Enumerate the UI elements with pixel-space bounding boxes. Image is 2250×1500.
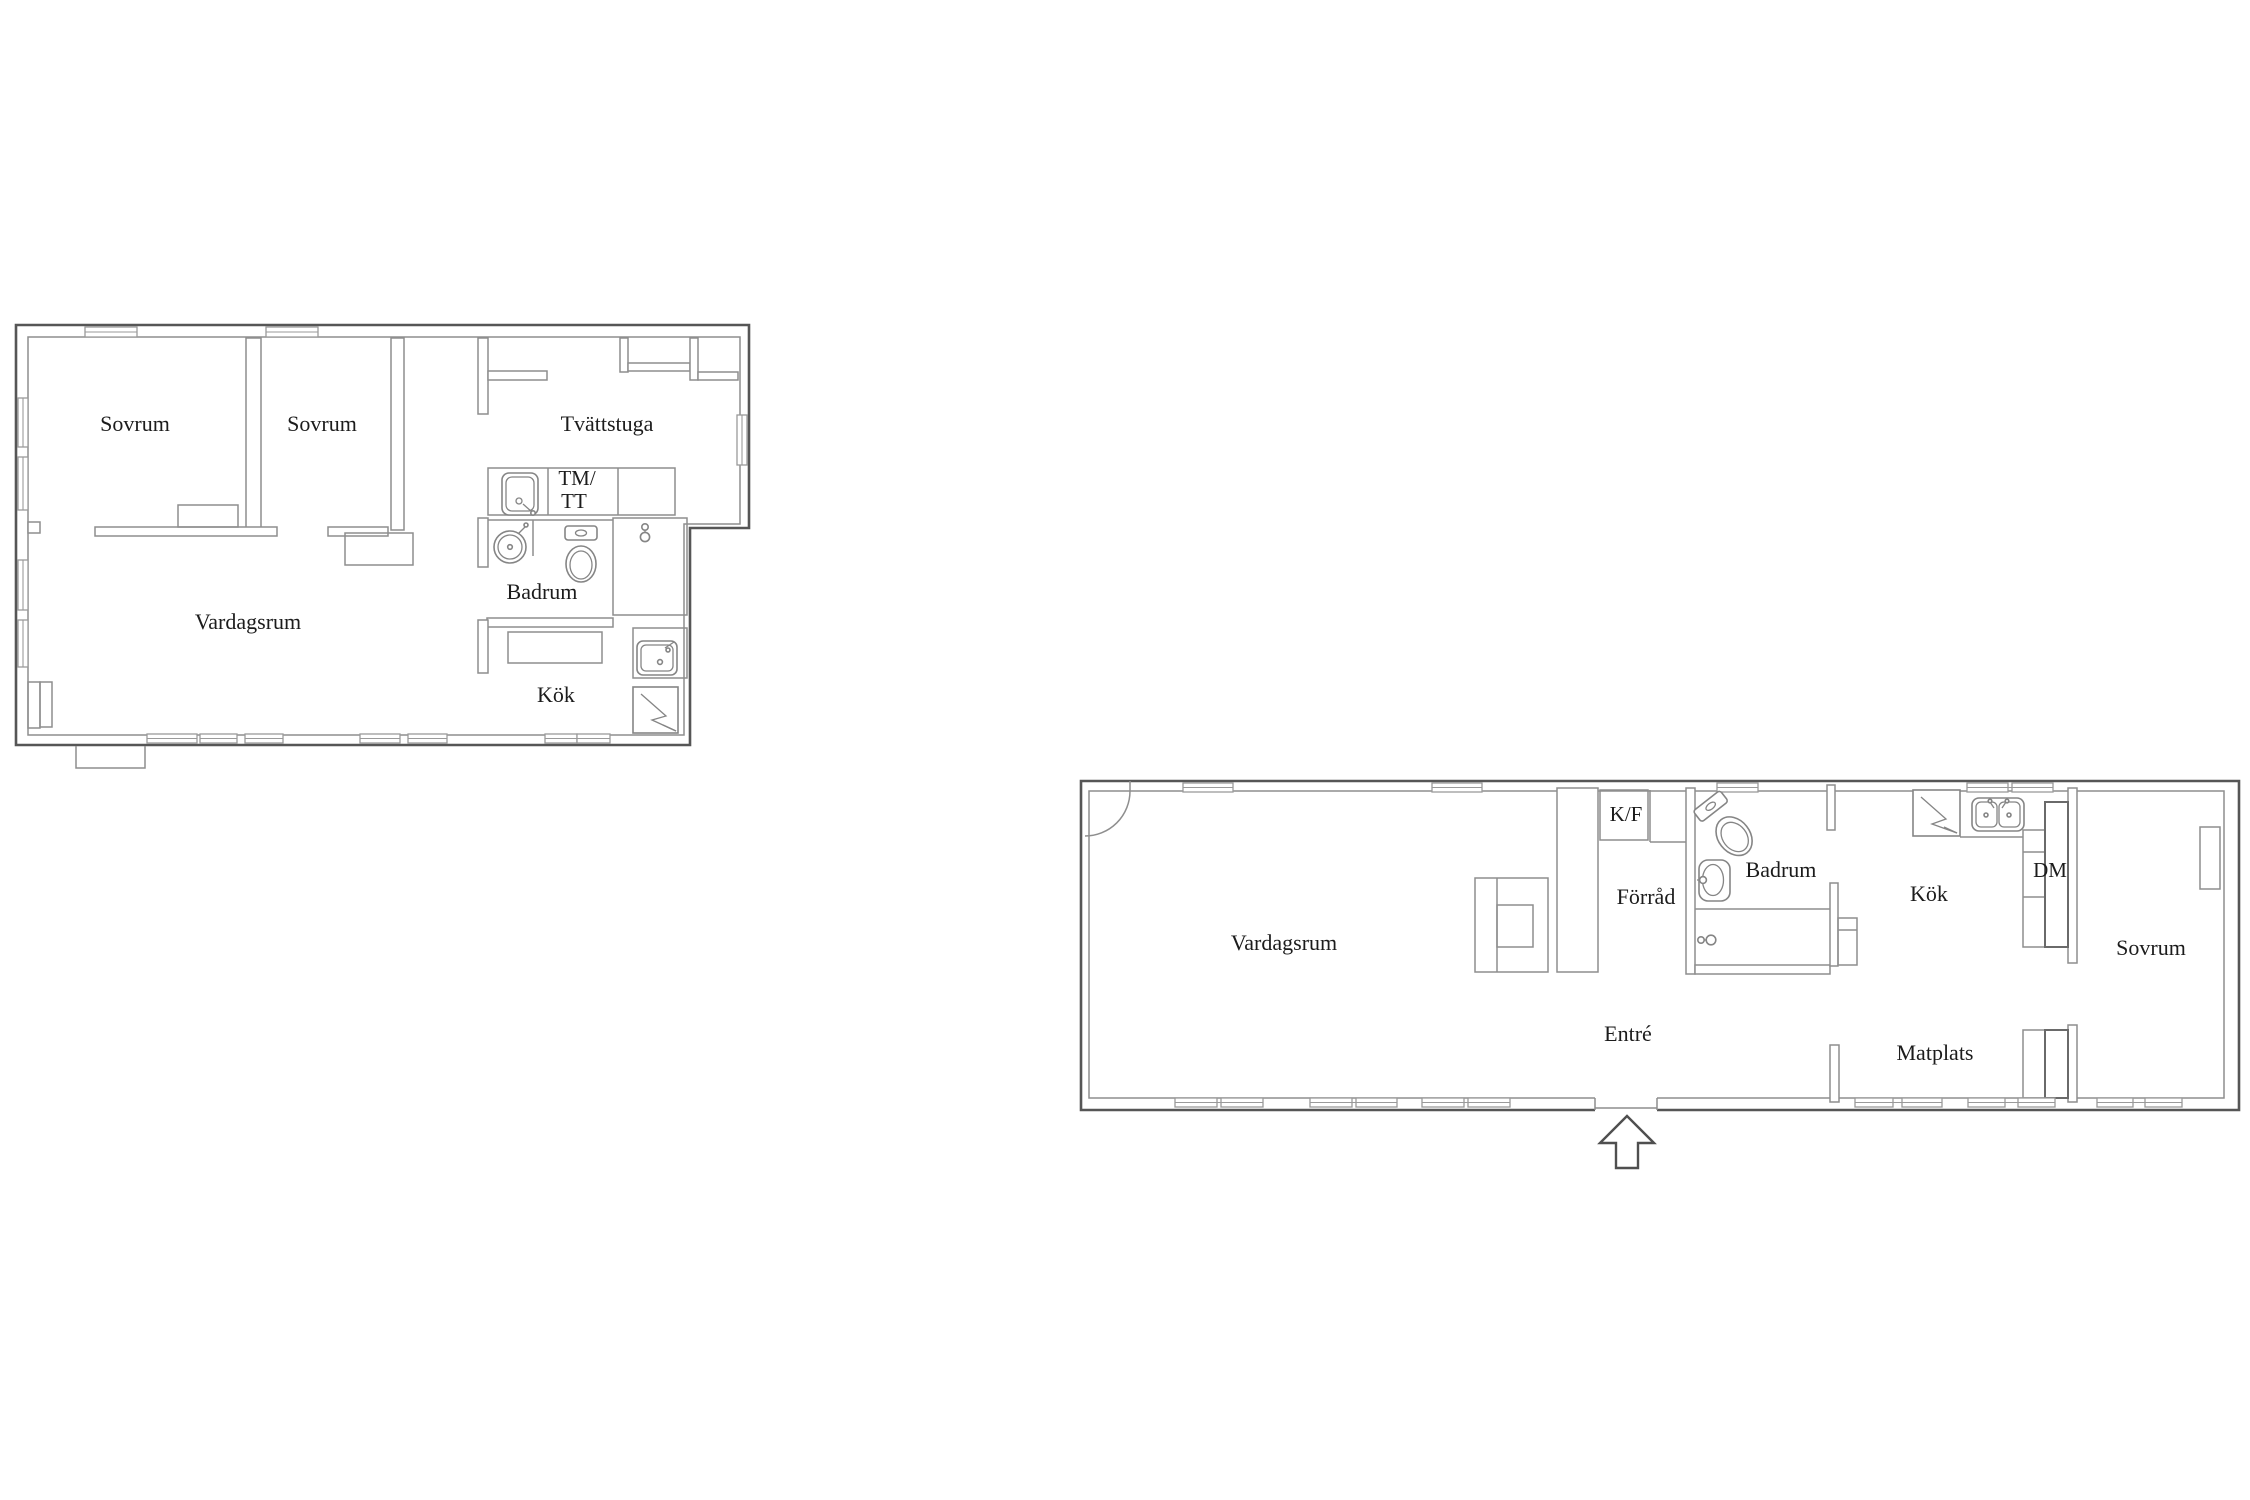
shower-mixer-icon: [1698, 935, 1716, 945]
room-label-tvattstuga: Tvättstuga: [561, 411, 654, 436]
wall-badrum-bottom: [1695, 965, 1830, 974]
wall-badrum-left: [1686, 788, 1695, 974]
wall-closet-a: [620, 338, 628, 372]
room-label-sovrum-2: Sovrum: [287, 411, 357, 436]
room-label-matplats: Matplats: [1897, 1040, 1974, 1065]
room-label-vardagsrum-upper: Vardagsrum: [195, 609, 301, 634]
wall-sovrum-divider: [246, 338, 261, 530]
shelf-tvattstuga-left: [488, 371, 547, 380]
toilet-icon: [565, 526, 597, 582]
wall-sovrum1-bottom: [95, 527, 277, 536]
lower-floor-plan: Vardagsrum K/F Förråd Badrum Kök DM Sovr…: [1081, 781, 2239, 1168]
room-label-badrum-upper: Badrum: [507, 579, 578, 604]
shower-mixer-icon: [640, 524, 649, 542]
wall-closet-b: [690, 338, 698, 380]
laundry-sink-icon: [502, 473, 538, 515]
room-label-entre: Entré: [1604, 1021, 1652, 1046]
appliance-label-dm: DM: [2033, 858, 2067, 882]
wall-entre-matplats: [1830, 1045, 1839, 1102]
appliance-label-tm: TM/: [558, 466, 596, 490]
window-icon: [737, 415, 747, 465]
wall-sovrum2-right: [391, 338, 404, 530]
room-label-badrum-lower: Badrum: [1746, 857, 1817, 882]
wall-badrum-bottom: [487, 618, 613, 627]
stove-lightning-icon: [1913, 790, 1960, 836]
wall-badrum-right-low: [1830, 883, 1838, 966]
room-label-forrad: Förråd: [1617, 884, 1676, 909]
wall-nib: [28, 522, 40, 533]
oval-washbasin-icon: [1697, 860, 1730, 901]
wall-matplats-sovrum: [2068, 1025, 2077, 1102]
wall-sovrum2-bottom: [328, 527, 388, 536]
wall-badrum-left: [478, 518, 488, 567]
double-sink-icon: [1972, 798, 2024, 831]
appliance-label-tt: TT: [561, 489, 587, 513]
appliance-label-kf: K/F: [1610, 802, 1643, 826]
kitchen-sink-icon: [637, 641, 677, 675]
room-label-kok-upper: Kök: [537, 682, 575, 707]
stove-lightning-icon: [633, 687, 678, 733]
floor-plan-page: Sovrum Sovrum Tvättstuga TM/ TT Badrum V…: [0, 0, 2250, 1500]
entrance-arrow-icon: [1600, 1116, 1654, 1168]
room-label-kok-lower: Kök: [1910, 881, 1948, 906]
shelf-closet-a: [628, 363, 690, 371]
upper-floor-plan: Sovrum Sovrum Tvättstuga TM/ TT Badrum V…: [16, 325, 749, 768]
wall-kok-sovrum: [2068, 788, 2077, 963]
room-label-vardagsrum-lower: Vardagsrum: [1231, 930, 1337, 955]
wall-vardagsrum-forrad: [1557, 788, 1598, 972]
wall-kok-left: [478, 620, 488, 673]
entry-step: [76, 746, 145, 768]
shelf-closet-b: [698, 372, 738, 380]
room-label-sovrum-lower: Sovrum: [2116, 935, 2186, 960]
room-label-sovrum-1: Sovrum: [100, 411, 170, 436]
wall-badrum-right-top: [1827, 785, 1835, 830]
wall-tvattstuga-left: [478, 338, 488, 414]
floor-plan-drawing: Sovrum Sovrum Tvättstuga TM/ TT Badrum V…: [0, 0, 2250, 1500]
